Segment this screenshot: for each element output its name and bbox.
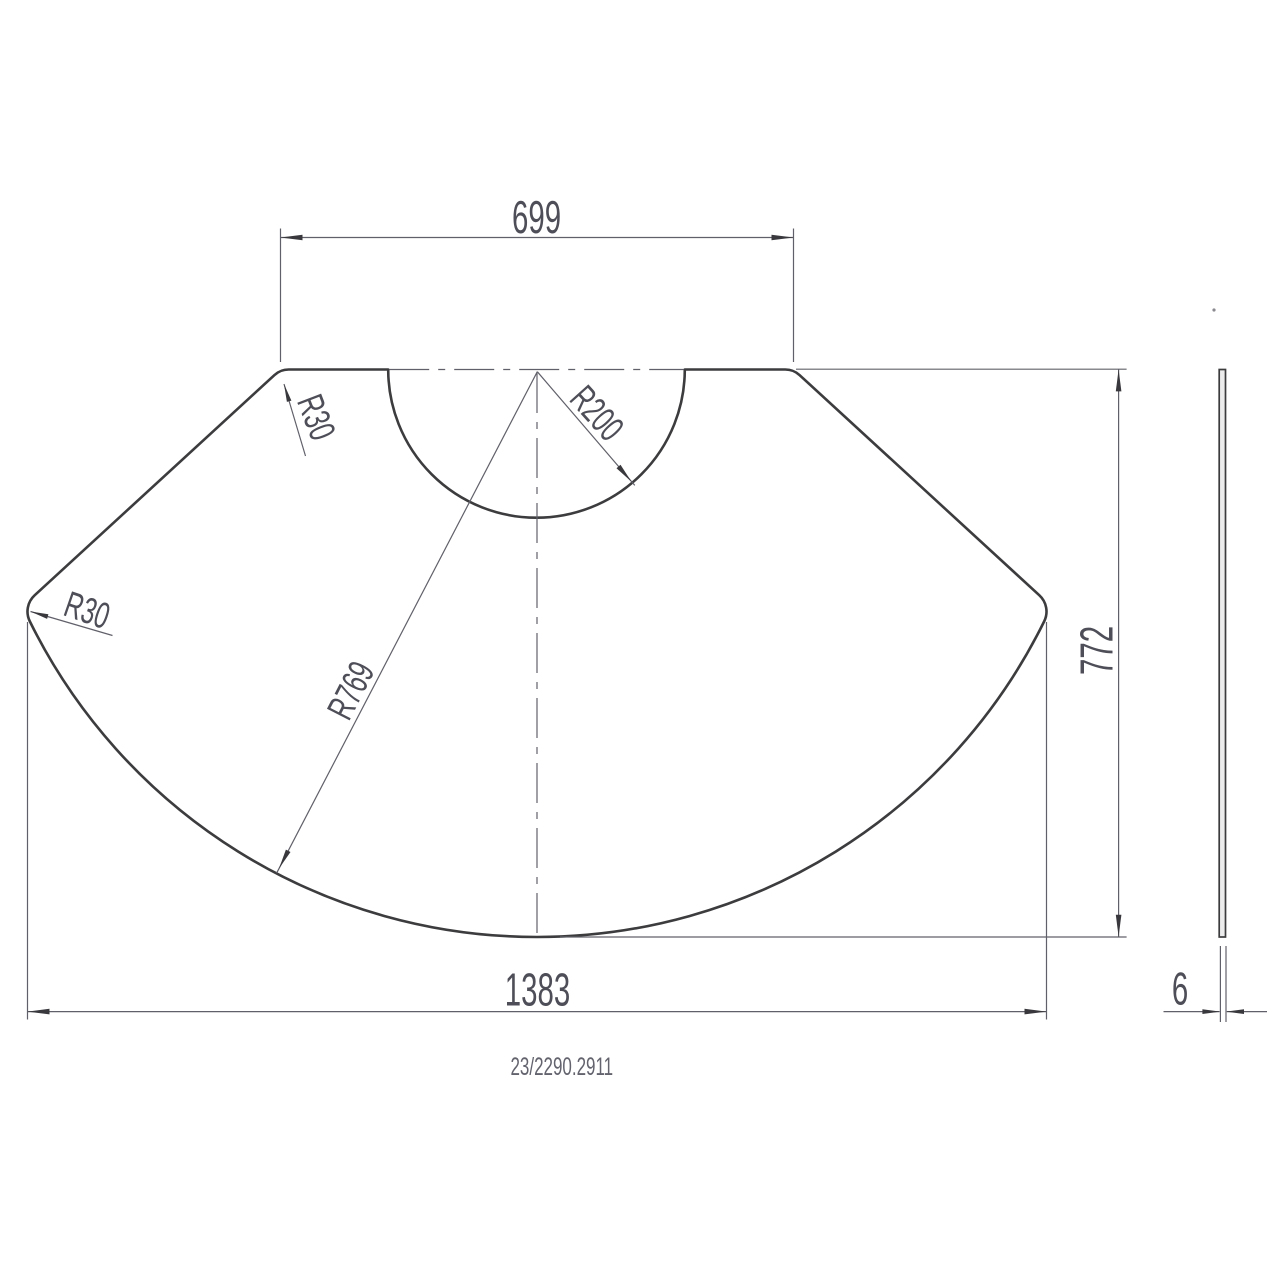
- svg-text:1383: 1383: [505, 965, 570, 1016]
- svg-text:23/2290.2911: 23/2290.2911: [510, 1053, 613, 1081]
- svg-text:699: 699: [512, 193, 561, 244]
- svg-text:6: 6: [1172, 964, 1188, 1015]
- svg-text:772: 772: [1072, 626, 1123, 675]
